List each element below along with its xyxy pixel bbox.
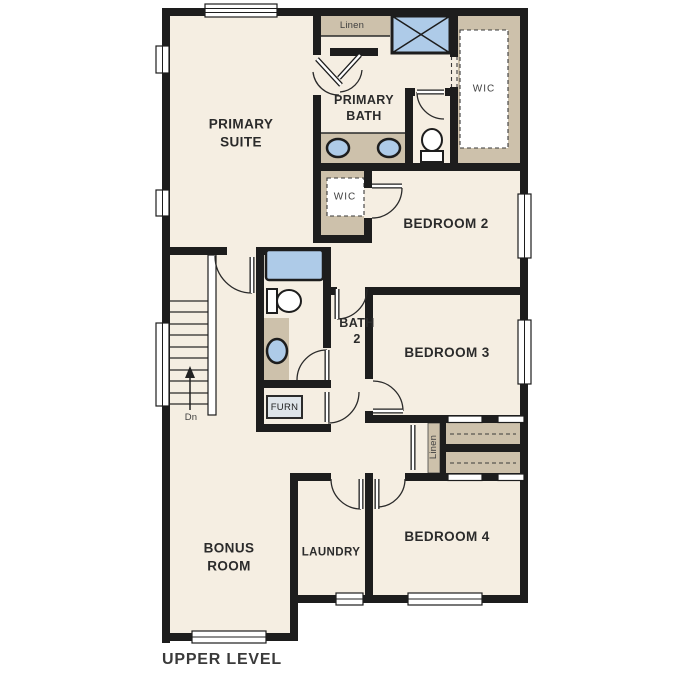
closet-door-panel: [498, 416, 524, 423]
room-label-primary-bath: PRIMARY BATH: [334, 92, 394, 125]
room-label-primary-suite: PRIMARY SUITE: [209, 115, 274, 150]
plan-title: UPPER LEVEL: [162, 651, 282, 669]
closet-label-linen-upper: Linen: [340, 20, 364, 32]
toilet: [277, 290, 301, 312]
closet-door-panel: [448, 474, 482, 481]
vanity-sink: [378, 139, 400, 157]
toilet: [422, 129, 442, 151]
vanity-sink: [267, 339, 287, 363]
stair-railing: [208, 255, 216, 415]
room-label-bath2: BATH 2: [339, 315, 374, 348]
stair-direction-label: Dn: [185, 412, 198, 424]
room-label-laundry: LAUNDRY: [302, 546, 361, 561]
closet-door-panel: [448, 416, 482, 423]
furnace-label: FURN: [271, 402, 299, 413]
furnace-closet: FURN: [266, 395, 303, 419]
room-label-bedroom3: BEDROOM 3: [404, 344, 489, 362]
window: [205, 4, 277, 17]
toilet-tank: [267, 289, 277, 313]
room-label-bedroom4: BEDROOM 4: [404, 528, 489, 546]
room-label-bonus-room: BONUS ROOM: [204, 539, 255, 574]
closet-label-hall-linen: Linen: [428, 435, 440, 459]
closet-door-panel: [498, 474, 524, 481]
floor-plan: PRIMARY SUITE PRIMARY BATH BEDROOM 2 BED…: [0, 0, 687, 687]
room-label-bedroom2: BEDROOM 2: [403, 215, 488, 233]
bathtub: [266, 250, 323, 280]
closet-label-bedroom2-wic: WIC: [334, 191, 356, 204]
toilet-tank: [421, 151, 443, 162]
vanity-sink: [327, 139, 349, 157]
closet-label-primary-wic: WIC: [473, 83, 495, 96]
